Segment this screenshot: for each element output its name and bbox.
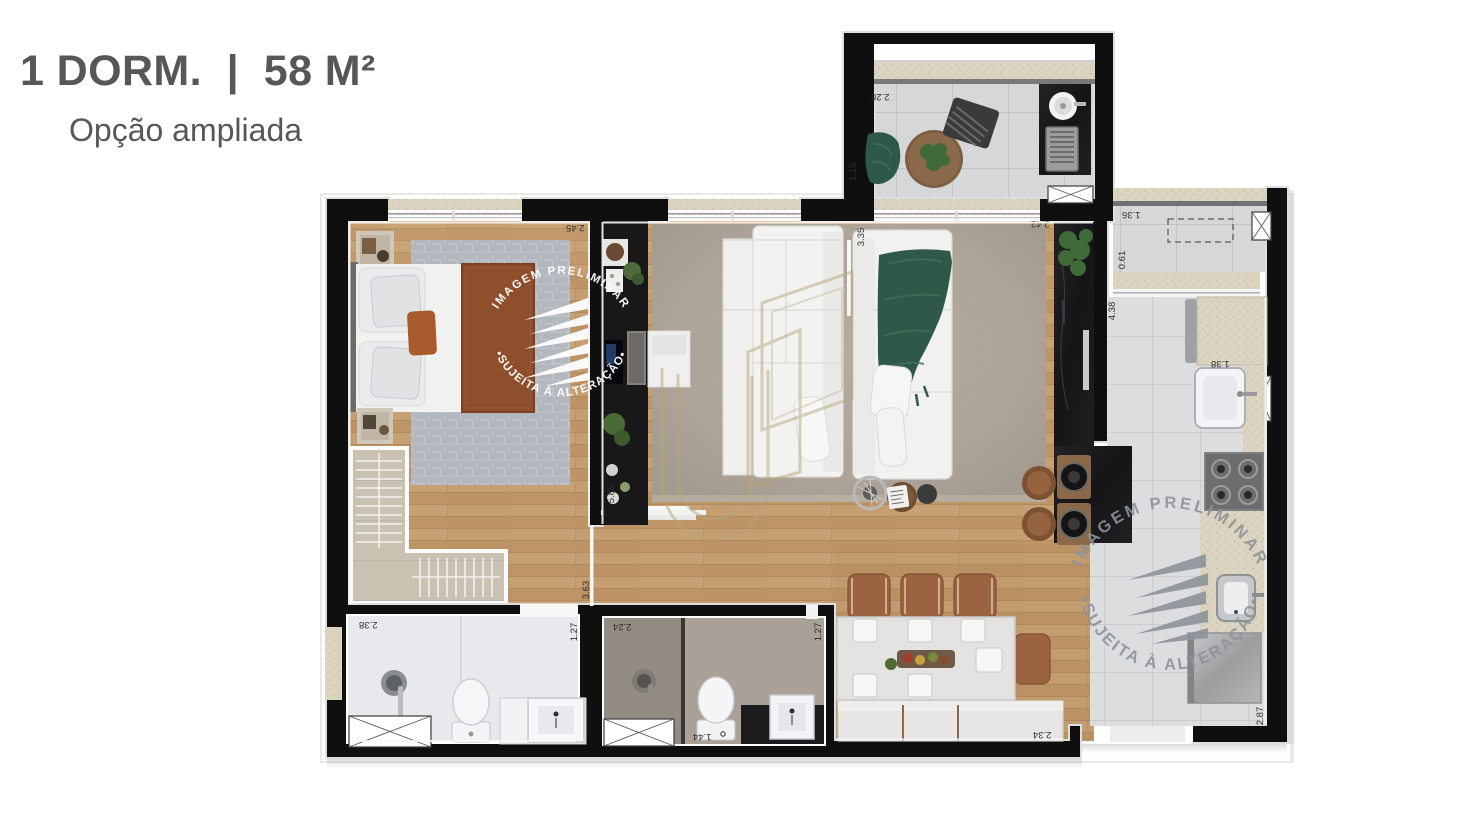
svg-text:3.35: 3.35 — [856, 228, 867, 247]
svg-text:1.44: 1.44 — [693, 731, 712, 742]
svg-text:1.36: 1.36 — [1122, 209, 1141, 220]
svg-text:1.27: 1.27 — [813, 623, 824, 642]
svg-text:0.61: 0.61 — [1117, 251, 1128, 270]
svg-text:5.85: 5.85 — [606, 485, 617, 504]
svg-text:2.24: 2.24 — [613, 621, 632, 632]
svg-text:1.38: 1.38 — [1211, 358, 1230, 369]
svg-text:4.38: 4.38 — [1107, 302, 1118, 321]
svg-text:1.15: 1.15 — [848, 163, 859, 182]
svg-text:2.38: 2.38 — [359, 619, 378, 630]
svg-text:2.28: 2.28 — [871, 91, 890, 102]
svg-text:2.45: 2.45 — [566, 222, 585, 233]
svg-text:2.87: 2.87 — [1255, 707, 1266, 726]
svg-text:1.27: 1.27 — [569, 623, 580, 642]
svg-text:3.63: 3.63 — [581, 581, 592, 600]
svg-text:2.34: 2.34 — [1033, 729, 1052, 740]
